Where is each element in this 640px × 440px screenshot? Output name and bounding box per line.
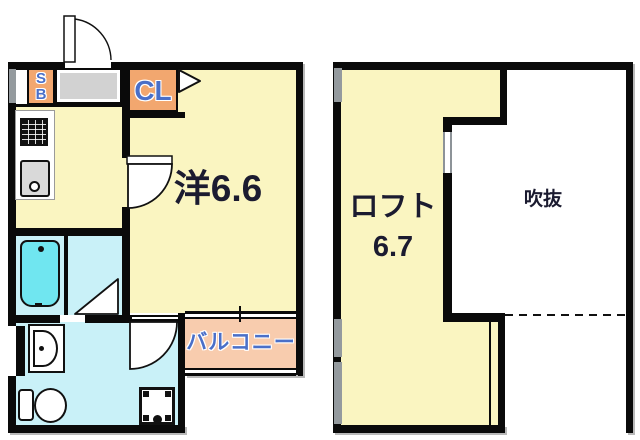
pan-corner-tl: [143, 391, 149, 397]
loft-wall-top: [333, 62, 633, 70]
loft-label: ロフト: [341, 193, 445, 222]
wall-right: [296, 62, 303, 376]
wall-bottom: [8, 425, 185, 433]
loft-wall-right: [626, 62, 633, 433]
loft-wall-lower-horiz: [445, 313, 505, 322]
shower-room: [68, 236, 122, 315]
bathtub-icon: [20, 240, 60, 307]
pan-drain-icon: [153, 415, 162, 424]
loft-window-left-2: [334, 362, 342, 424]
sink-drain-icon: [29, 181, 40, 192]
loft-wall-bottom: [333, 425, 505, 433]
entrance-door-leaf-icon: [64, 16, 75, 62]
washbasin-icon: [28, 324, 65, 373]
tub-faucet-dot: [38, 246, 44, 252]
loft-window-mid-wall: [443, 132, 452, 173]
wall-left-inset: [16, 326, 25, 376]
loft-wall-step: [445, 117, 507, 125]
pan-corner-br: [165, 415, 171, 421]
pan-corner-tr: [165, 391, 171, 397]
loft-wall-void-top: [500, 62, 507, 120]
wall-tub-divider: [64, 236, 68, 315]
loft-area-label: 6.7: [341, 233, 445, 262]
balcony-rail-bottom-2: [185, 373, 296, 376]
shoebox-label-b: B: [27, 87, 55, 102]
wall-washroom-right: [178, 313, 185, 433]
washbasin-drain-dot: [39, 346, 44, 351]
wall-top-a: [8, 62, 65, 70]
washer-pan-icon: [139, 387, 175, 425]
loft-bottom: [341, 322, 498, 425]
toilet-tank: [18, 389, 34, 421]
washroom-door-threshold: [132, 317, 178, 319]
wall-top-b: [111, 62, 303, 70]
loft-top: [341, 70, 501, 120]
entry-window: [9, 69, 16, 103]
balcony-label: バルコニー: [186, 332, 296, 353]
wall-bath-bottom-a: [15, 315, 60, 323]
floorplan-canvas: S B CL 洋6.6 バルコニー ロフト 6.7 吹抜: [0, 0, 640, 440]
entryway: [55, 68, 122, 104]
loft-window-top-left: [334, 68, 342, 102]
pan-corner-bl: [143, 415, 149, 421]
wall-kitchen-bath: [15, 228, 122, 236]
toilet-bowl: [34, 388, 67, 423]
balcony-rail-bottom-1: [185, 368, 296, 370]
closet-label: CL: [128, 77, 178, 105]
wall-cl-bottom: [122, 112, 185, 118]
wall-left-niche: [8, 326, 16, 376]
loft-window-left-1: [334, 319, 342, 357]
stove-icon: [20, 118, 48, 146]
loft-edge-line: [489, 322, 491, 425]
shoebox-label-s: S: [27, 71, 55, 86]
wall-kitchen-room-lower: [122, 207, 130, 321]
wall-entry-bottom: [15, 104, 122, 107]
washbasin-bowl: [33, 330, 58, 367]
tub-drain-notch: [35, 303, 42, 307]
balcony-rail-tick: [239, 306, 241, 322]
entrance-door-arc-icon: [75, 19, 111, 60]
loft-wall-lower-vert: [498, 313, 505, 433]
kitchen-sink-icon: [20, 160, 50, 197]
void-label: 吹抜: [514, 190, 572, 209]
main-room-label: 洋6.6: [158, 170, 278, 207]
